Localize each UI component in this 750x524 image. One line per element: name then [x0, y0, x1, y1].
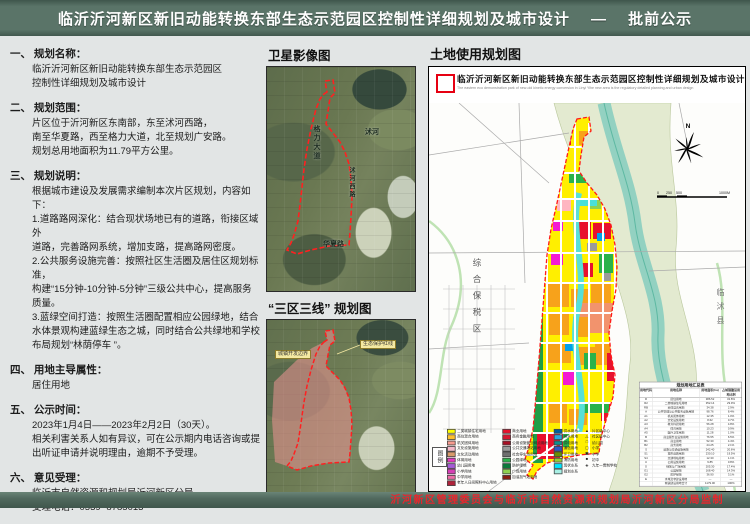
legend-label: 老年人日间照料中心用地 [457, 481, 496, 486]
notice-section: 三、 规划说明： 根据城市建设及发展需求编制本次片区规划，内容如下： 1.道路路… [10, 168, 260, 353]
legend-symbol: ▲ [583, 430, 590, 434]
legend-label: 防护绿地 [512, 464, 526, 469]
legend-item: 通信用地 [553, 447, 577, 452]
legend-item: 规划水系 [553, 470, 577, 475]
legend-title-box: 图例 [432, 447, 447, 467]
cell-code [640, 482, 654, 486]
legend-item: 公用设施营业网点用地 [502, 441, 548, 446]
landuse-panel: 土地使用规划图 临沂沂河新区新旧动能转换东部生态示范园区控制性详细规划及城市设计… [428, 44, 748, 492]
section-heading: 一、 规划名称： [10, 46, 260, 61]
legend-label: 公共交通场站用地 [512, 447, 541, 452]
legend-item: 机关团体用地 [447, 441, 497, 446]
svg-text:250: 250 [666, 191, 672, 195]
label-bonded-zone: 综合保税区 [471, 258, 483, 341]
legend-label: 商务金融用地 [512, 435, 534, 440]
legend-label: 小学用地 [457, 470, 471, 475]
legend-item: 幼儿园用地 [447, 464, 497, 469]
legend-item: 消防用地 [553, 458, 577, 463]
legend-label: 社会停车场用地 [512, 452, 537, 457]
svg-text:0: 0 [657, 191, 659, 195]
section-body: 2023年1月4日——2023年2月2日（30天）。 相关利害关系人如有异议，可… [10, 419, 260, 461]
satellite-map-title: 卫星影像图 [268, 45, 420, 64]
notice-section: 一、 规划名称： 临沂沂河新区新旧动能转换东部生态示范园区 控制性详细规划及城市… [10, 46, 260, 91]
legend-swatch [553, 470, 562, 475]
legend-label: 现状水系 [564, 464, 578, 469]
section-body: 居住用地 [10, 379, 260, 393]
legend-swatch [447, 481, 456, 486]
legend-label: 九年一贯制学校 [592, 464, 617, 469]
legend-label: 文化设施用地 [457, 447, 479, 452]
svg-text:N: N [686, 123, 691, 130]
legend-symbol: ■ [583, 459, 590, 463]
legend-item: 商住混合用地 [447, 435, 497, 440]
landuse-map-canvas: N 0 250 500 1000M 综合保税区 临沭县 [429, 103, 745, 491]
legend-label: 环卫用地 [564, 452, 578, 457]
landuse-summary-table: 规划用地汇总表 用地代码 用地名称 用地面积(ha) 占城镇建设用地比例 R 居… [639, 382, 742, 487]
legend-symbol: ▢ [583, 447, 590, 451]
legend-item: 广场用地 [502, 470, 548, 475]
legend-label: 社区级中心 [592, 435, 610, 440]
legend-item: 公园绿地 [502, 458, 548, 463]
section-body: 根据城市建设及发展需求编制本次片区规划，内容如下： 1.道路路网深化：结合现状场… [10, 185, 260, 353]
legend-item: 商务金融用地 [502, 435, 548, 440]
legend-label: 体育用地 [457, 458, 471, 463]
satellite-column: 卫星影像图 格力大道 沭河 沭河西路 华夏路 “三区三线” 规划图 城镇开发边界… [266, 44, 420, 499]
notice-section: 二、 规划范围： 片区位于沂河新区东南部，东至沭河西路， 南至华夏路，西至格力大… [10, 100, 260, 159]
cell-area: 1179.00 [700, 482, 722, 486]
legend-label: 中学 [592, 452, 599, 457]
three-zones-image: 城镇开发边界 生态保护红线 [266, 319, 416, 499]
col-header: 用地面积(ha) [700, 389, 722, 398]
legend-item: 小学用地 [447, 470, 497, 475]
map-inner-subtitle-en: The eastern eco demonstration park of ne… [457, 86, 741, 90]
section-body: 片区位于沂河新区东南部，东至沭河西路， 南至华夏路，西至格力大道，北至规划广安路… [10, 117, 260, 159]
notice-section: 五、 公示时间： 2023年1月4日——2023年2月2日（30天）。 相关利害… [10, 402, 260, 461]
legend-label: 商住混合用地 [457, 435, 479, 440]
legend-swatch [502, 475, 511, 480]
notice-section: 四、 用地主导属性： 居住用地 [10, 362, 260, 393]
legend-label: 通信用地 [564, 447, 578, 452]
legend-label: 加油加气站用地 [512, 475, 537, 480]
legend-label: 规划水系 [564, 470, 578, 475]
legend-item: 供电用地 [553, 441, 577, 446]
map-legend: 二类城镇住宅用地商住混合用地机关团体用地文化设施用地文化活动用地体育用地幼儿园用… [447, 429, 617, 486]
legend-item: 老年人日间照料中心用地 [447, 481, 497, 486]
legend-label: 幼儿园 [592, 441, 603, 446]
legend-item: 社会停车场用地 [502, 452, 548, 457]
producer-credit: 沂河新区管理委员会与临沂市自然资源和规划局沂河新区分局监制 [391, 491, 725, 506]
landuse-map-frame: 临沂沂河新区新旧动能转换东部生态示范园区控制性详细规划及城市设计 The eas… [428, 66, 746, 492]
section-heading: 四、 用地主导属性： [10, 362, 260, 377]
legend-symbol: △ [583, 436, 590, 440]
legend-title: 图例 [435, 450, 444, 464]
legend-symbol: □ [583, 441, 590, 445]
legend-item: ▣中学 [583, 452, 617, 457]
legend-item: 文化设施用地 [447, 447, 497, 452]
legend-item: 加油加气站用地 [502, 475, 548, 480]
legend-item: □幼儿园 [583, 441, 617, 446]
legend-label: 文化活动用地 [457, 452, 479, 457]
label-linshu-county: 临沭县 [715, 288, 726, 330]
section-heading: 二、 规划范围： [10, 100, 260, 115]
landuse-map-title: 土地使用规划图 [430, 44, 748, 63]
map-inner-title: 临沂沂河新区新旧动能转换东部生态示范园区控制性详细规划及城市设计 [457, 73, 741, 85]
legend-label: 排水用地 [564, 435, 578, 440]
road-label-geli-avenue: 格力大道 [311, 125, 321, 161]
legend-item: 防护绿地 [502, 464, 548, 469]
legend-item: ■初中 [583, 458, 617, 463]
legend-item: △社区级中心 [583, 435, 617, 440]
legend-item: 环卫用地 [553, 452, 577, 457]
legend-column-2: 商业用地商务金融用地公用设施营业网点用地公共交通场站用地社会停车场用地公园绿地防… [502, 429, 548, 486]
legend-label: 幼儿园用地 [457, 464, 475, 469]
section-heading: 六、 意见受理： [10, 470, 260, 485]
river-label-shuhe: 沭河 [365, 127, 379, 137]
legend-column-3: 供水用地排水用地供电用地通信用地环卫用地消防用地现状水系规划水系 [553, 429, 577, 486]
legend-column-1: 二类城镇住宅用地商住混合用地机关团体用地文化设施用地文化活动用地体育用地幼儿园用… [447, 429, 497, 486]
section-heading: 三、 规划说明： [10, 168, 260, 183]
legend-label: 供电用地 [564, 441, 578, 446]
col-header: 用地代码 [640, 389, 654, 398]
legend-label: 消防用地 [564, 458, 578, 463]
legend-label: 广场用地 [512, 470, 526, 475]
legend-item: ◈九年一贯制学校 [583, 464, 617, 469]
road-label-huaxia-road: 华夏路 [323, 239, 344, 249]
legend-label: 公园绿地 [512, 458, 526, 463]
legend-label: 机关团体用地 [457, 441, 479, 446]
svg-text:1000M: 1000M [719, 191, 730, 195]
road-label-shuhe-west-road: 沭河西路 [347, 167, 356, 199]
notice-text-panel: 一、 规划名称： 临沂沂河新区新旧动能转换东部生态示范园区 控制性详细规划及城市… [10, 46, 260, 524]
section-heading: 五、 公示时间： [10, 402, 260, 417]
label-development-boundary: 城镇开发边界 [275, 350, 311, 359]
table-row: 城镇建设用地合计 1179.00 100% [640, 482, 742, 486]
header-banner: 临沂沂河新区新旧动能转换东部生态示范园区控制性详细规划及城市设计 — 批前公示 [0, 0, 750, 36]
legend-label: 小学 [592, 447, 599, 452]
legend-column-symbols: ▲片区级中心△社区级中心□幼儿园▢小学▣中学■初中◈九年一贯制学校 [583, 429, 617, 486]
legend-label: 初中 [592, 458, 599, 463]
page-title: 临沂沂河新区新旧动能转换东部生态示范园区控制性详细规划及城市设计 — 批前公示 [58, 8, 692, 29]
col-header: 用地名称 [653, 389, 700, 398]
satellite-image: 格力大道 沭河 沭河西路 华夏路 [266, 66, 416, 292]
map-title-band: 临沂沂河新区新旧动能转换东部生态示范园区控制性详细规划及城市设计 The eas… [429, 67, 745, 103]
svg-text:500: 500 [676, 191, 682, 195]
col-header: 占城镇建设用地比例 [721, 389, 741, 398]
cell-name: 城镇建设用地合计 [653, 482, 700, 486]
legend-item: 排水用地 [553, 435, 577, 440]
legend-symbol: ▣ [583, 453, 590, 457]
plan-logo-mark [436, 74, 455, 93]
legend-item: 公共交通场站用地 [502, 447, 548, 452]
table-body: R 居住用地 386.52 32.8% R2 二类城镇住宅用地 352.14 2… [640, 398, 742, 486]
legend-item: 体育用地 [447, 458, 497, 463]
legend-symbol: ◈ [583, 464, 590, 468]
section-body: 临沂沂河新区新旧动能转换东部生态示范园区 控制性详细规划及城市设计 [10, 63, 260, 91]
legend-label: 公用设施营业网点用地 [512, 441, 548, 446]
three-zones-map-title: “三区三线” 规划图 [268, 298, 420, 317]
legend-item: 文化活动用地 [447, 452, 497, 457]
legend-item: 现状水系 [553, 464, 577, 469]
site-boundary-overlay [267, 67, 415, 291]
label-eco-redline: 生态保护红线 [360, 340, 396, 349]
cell-pct: 100% [721, 482, 741, 486]
public-notice-poster: 临沂沂河新区新旧动能转换东部生态示范园区控制性详细规划及城市设计 — 批前公示 … [0, 0, 750, 508]
